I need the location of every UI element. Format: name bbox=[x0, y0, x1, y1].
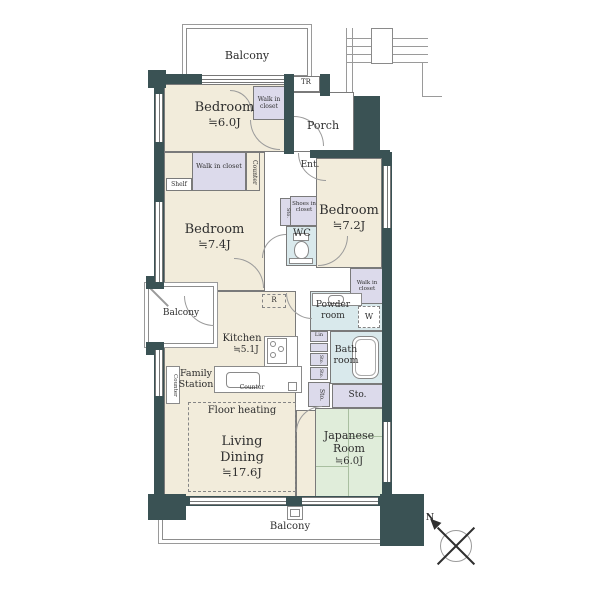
kitchen-size: ≒5.1J bbox=[216, 345, 276, 356]
window-japanese-balcony bbox=[302, 497, 378, 505]
window-bedroom6 bbox=[155, 94, 163, 142]
bedroom74-name: Bedroom bbox=[164, 222, 265, 237]
door-arc-wc bbox=[262, 234, 286, 258]
small-closet bbox=[310, 343, 328, 352]
balcony-drain-inner bbox=[290, 509, 300, 517]
kitchen-name: Kitchen bbox=[212, 333, 272, 345]
wc-label: WC bbox=[286, 228, 318, 240]
bedroom72-size: ≒7.2J bbox=[316, 219, 382, 233]
window-japanese bbox=[383, 422, 391, 482]
fridge-label: R bbox=[262, 296, 286, 304]
living-size: ≒17.6J bbox=[188, 466, 296, 480]
tr-label: TR bbox=[292, 78, 320, 86]
corridor-pillar bbox=[371, 28, 393, 64]
toilet-bowl bbox=[294, 241, 309, 259]
window-bedroom72 bbox=[383, 166, 391, 228]
balcony-top-label: Balcony bbox=[186, 50, 308, 63]
dishwasher bbox=[288, 382, 297, 391]
japanese-size: ≒6.0J bbox=[315, 456, 383, 468]
window-balcony-top bbox=[202, 75, 284, 83]
window-family-station bbox=[155, 350, 163, 396]
shelf-label: Shelf bbox=[166, 181, 192, 188]
wic-top-label: Walk in closet bbox=[254, 96, 284, 110]
corridor-line bbox=[422, 96, 442, 97]
family-station-label: Family Station bbox=[172, 368, 220, 390]
bedroom72-name: Bedroom bbox=[316, 203, 382, 218]
floor-plan: Balcony TR Porch Bedroom ≒6.0J Walk in c… bbox=[0, 0, 600, 600]
bath-label: Bath room bbox=[331, 344, 361, 366]
sto-b-label: Sto. bbox=[314, 368, 323, 379]
window-living-balcony bbox=[190, 497, 286, 505]
sto-tall-label: Sto. bbox=[312, 385, 325, 405]
balcony-left-label: Balcony bbox=[150, 308, 212, 319]
bedroom6-size: ≒6.0J bbox=[164, 116, 285, 130]
pier-bottom-right bbox=[380, 494, 424, 546]
wall-tr-right bbox=[320, 74, 330, 96]
wall-porch-right bbox=[354, 96, 380, 154]
floor-heating-label: Floor heating bbox=[188, 405, 296, 417]
counter-kitchen-label: Counter bbox=[222, 384, 282, 391]
burner-icon bbox=[278, 346, 284, 352]
sto-tiny-label: Sto. bbox=[282, 204, 290, 222]
sto-a-label: Sto. bbox=[314, 354, 323, 365]
counter-left-label: Counter bbox=[169, 370, 178, 400]
sto-wide-label: Sto. bbox=[332, 390, 383, 401]
walk-in-closet-mid bbox=[192, 152, 246, 191]
counter-top-label: Counter bbox=[248, 156, 258, 188]
japanese-l2: Room bbox=[315, 443, 383, 456]
bedroom74-size: ≒7.4J bbox=[164, 238, 265, 252]
shoes-label: Shoes in closet bbox=[291, 201, 317, 214]
pier-top-left bbox=[148, 70, 166, 88]
washer-label: W bbox=[358, 312, 380, 321]
wic-mid-label: Walk in closet bbox=[194, 163, 244, 171]
living-l1: Living bbox=[188, 434, 296, 449]
corridor-line bbox=[422, 62, 423, 96]
window-bedroom74 bbox=[155, 202, 163, 282]
porch-label: Porch bbox=[292, 120, 354, 133]
compass-n-label: N bbox=[423, 513, 437, 524]
balcony-bottom-label: Balcony bbox=[162, 521, 418, 533]
powder-label: Powder room bbox=[310, 300, 356, 321]
pier-bottom-left bbox=[148, 494, 186, 520]
living-l2: Dining bbox=[188, 450, 296, 465]
wc-shelf bbox=[289, 258, 313, 264]
compass: N bbox=[421, 511, 491, 581]
ent-label: Ent. bbox=[288, 160, 332, 171]
lin-label: Lin bbox=[310, 333, 328, 339]
wic-right-label: Walk in closet bbox=[352, 280, 382, 293]
